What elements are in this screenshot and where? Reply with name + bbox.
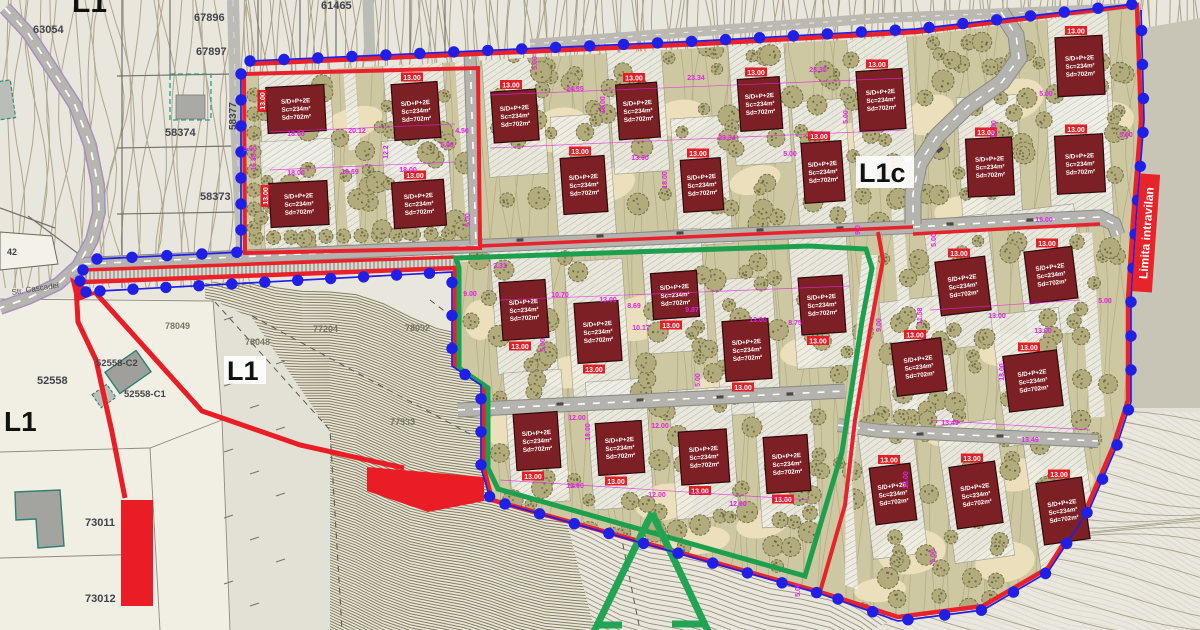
svg-text:9.0: 9.0: [855, 225, 862, 235]
svg-text:12.00: 12.00: [566, 483, 584, 490]
svg-text:5.00: 5.00: [695, 373, 702, 387]
svg-text:13.00: 13.00: [950, 251, 968, 258]
svg-text:13.00: 13.00: [747, 70, 765, 77]
svg-text:13.00: 13.00: [260, 92, 267, 110]
svg-text:18.00: 18.00: [903, 471, 910, 489]
svg-text:77204: 77204: [313, 324, 338, 334]
svg-text:10.17: 10.17: [632, 325, 650, 332]
svg-text:13.00: 13.00: [734, 385, 752, 392]
svg-text:9.00: 9.00: [876, 318, 883, 332]
svg-text:12.00: 12.00: [568, 415, 586, 422]
svg-text:78092: 78092: [405, 323, 430, 333]
svg-text:13.00: 13.00: [263, 187, 270, 205]
svg-text:13.00: 13.00: [585, 367, 603, 374]
svg-text:13.00: 13.00: [988, 313, 1006, 320]
svg-text:13.00: 13.00: [1034, 328, 1052, 335]
svg-text:8.75: 8.75: [788, 320, 802, 327]
svg-text:4.50: 4.50: [455, 128, 469, 135]
svg-text:52558-C2: 52558-C2: [96, 358, 138, 369]
svg-text:13.00: 13.00: [631, 155, 649, 162]
svg-text:5.00: 5.00: [1119, 132, 1133, 139]
svg-text:13.00: 13.00: [571, 149, 589, 156]
svg-text:13.00: 13.00: [511, 344, 529, 351]
svg-text:13.00: 13.00: [607, 479, 625, 486]
svg-text:13.00: 13.00: [1050, 472, 1068, 479]
svg-text:18.00: 18.00: [287, 131, 305, 138]
svg-text:42: 42: [7, 247, 17, 257]
svg-text:13.00: 13.00: [880, 458, 898, 465]
svg-text:9.00: 9.00: [463, 291, 477, 298]
svg-text:18.00: 18.00: [999, 363, 1006, 381]
svg-text:5.00: 5.00: [465, 213, 472, 227]
svg-text:13.00: 13.00: [599, 297, 617, 304]
svg-text:13.00: 13.00: [691, 489, 709, 496]
svg-text:11.58: 11.58: [917, 307, 924, 324]
svg-text:78048: 78048: [245, 337, 270, 347]
svg-text:5.00: 5.00: [783, 151, 797, 158]
svg-text:12.2: 12.2: [383, 145, 390, 159]
svg-text:16.85: 16.85: [251, 153, 258, 171]
svg-text:13.00: 13.00: [524, 474, 542, 481]
svg-text:12.00: 12.00: [648, 492, 666, 499]
svg-text:13.00: 13.00: [809, 339, 827, 346]
svg-text:13.00: 13.00: [749, 317, 767, 324]
svg-text:9.87: 9.87: [685, 307, 699, 314]
svg-text:13.00: 13.00: [1067, 29, 1085, 36]
svg-text:L1: L1: [4, 406, 37, 437]
svg-text:23.35: 23.35: [809, 67, 827, 74]
svg-text:63054: 63054: [33, 24, 64, 36]
svg-text:13.00: 13.00: [403, 75, 421, 82]
svg-text:5.00: 5.00: [243, 146, 257, 153]
svg-text:5.00: 5.00: [532, 56, 539, 70]
svg-text:73011: 73011: [85, 517, 115, 529]
svg-text:13.00: 13.00: [1038, 241, 1056, 248]
svg-text:13.00: 13.00: [810, 134, 828, 141]
svg-text:77533: 77533: [390, 417, 415, 427]
svg-text:8.69: 8.69: [627, 303, 641, 310]
svg-text:5.00: 5.00: [440, 142, 454, 149]
svg-text:13.00: 13.00: [662, 323, 680, 330]
svg-text:13.00: 13.00: [502, 83, 520, 90]
svg-text:20.12: 20.12: [348, 128, 366, 135]
svg-text:5.00: 5.00: [1039, 91, 1053, 98]
svg-text:67896: 67896: [194, 12, 225, 24]
svg-text:12.00: 12.00: [729, 501, 747, 508]
svg-text:5.00: 5.00: [795, 583, 802, 597]
svg-text:L1c: L1c: [859, 158, 906, 188]
svg-text:5.00: 5.00: [930, 549, 937, 563]
svg-text:3.31: 3.31: [493, 263, 507, 270]
svg-text:L1: L1: [72, 0, 107, 19]
svg-text:13.00: 13.00: [963, 456, 981, 463]
svg-text:78049: 78049: [165, 321, 190, 331]
svg-text:16.69: 16.69: [341, 169, 359, 176]
svg-text:73012: 73012: [85, 593, 116, 605]
svg-text:13.00: 13.00: [625, 76, 643, 83]
svg-text:5.00: 5.00: [843, 110, 850, 124]
svg-text:18.00: 18.00: [585, 423, 592, 441]
svg-text:18.00: 18.00: [662, 171, 669, 189]
svg-text:18.00: 18.00: [287, 170, 305, 177]
svg-text:5.00: 5.00: [931, 233, 938, 247]
svg-text:13.00: 13.00: [689, 151, 707, 158]
svg-text:13.00: 13.00: [868, 62, 886, 69]
svg-text:13.00: 13.00: [406, 173, 424, 180]
svg-text:52558: 52558: [37, 375, 68, 387]
svg-text:52558-C1: 52558-C1: [124, 389, 166, 400]
svg-text:58373: 58373: [200, 191, 231, 203]
svg-text:18.00: 18.00: [399, 167, 417, 174]
svg-text:5.00: 5.00: [540, 338, 547, 352]
svg-text:L1: L1: [227, 356, 259, 386]
svg-text:13.49: 13.49: [1021, 437, 1039, 444]
svg-text:13.00: 13.00: [1020, 345, 1038, 352]
svg-text:5.00: 5.00: [1098, 298, 1112, 305]
svg-text:23.34: 23.34: [718, 135, 736, 142]
svg-text:13.00: 13.00: [1067, 127, 1085, 134]
svg-text:13.00: 13.00: [906, 333, 924, 340]
svg-text:58377: 58377: [228, 102, 239, 130]
svg-text:67897: 67897: [196, 46, 227, 58]
svg-text:12.00: 12.00: [651, 423, 669, 430]
svg-text:61465: 61465: [321, 0, 352, 12]
svg-text:10.00: 10.00: [991, 120, 998, 138]
svg-text:58374: 58374: [165, 127, 196, 139]
svg-text:18.00: 18.00: [600, 96, 607, 114]
svg-text:15.00: 15.00: [1035, 217, 1053, 224]
svg-text:23.34: 23.34: [687, 75, 705, 82]
